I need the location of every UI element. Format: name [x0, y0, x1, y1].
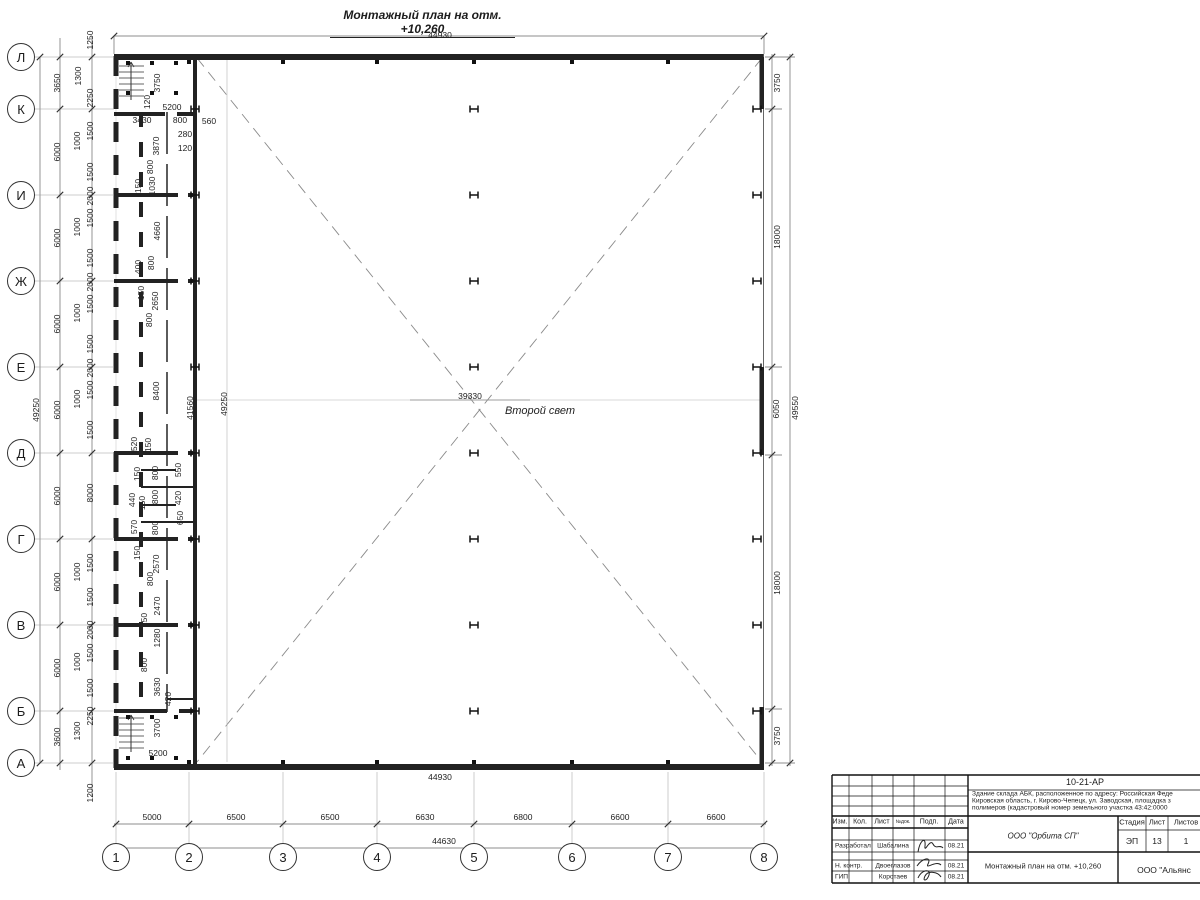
project-desc-line2: Кировская область, г. Кирово-Чепецк, ул.… [972, 798, 1171, 805]
stairs-top [119, 62, 144, 100]
dim-label: 6500 [321, 812, 340, 822]
dim-label: 4660 [152, 222, 162, 241]
tb-role: Н. контр. [835, 862, 862, 869]
dim-label: 570 [129, 520, 139, 534]
dim-label: 3430 [133, 115, 152, 125]
axis-row-Ж: Ж [7, 267, 35, 295]
partition-walls [114, 114, 193, 711]
dim-label: 1000 [72, 218, 82, 237]
project-desc-line3: полимеров (кадастровый номер земельного … [972, 805, 1168, 812]
dim-label: 6000 [52, 401, 62, 420]
dim-label: 5200 [149, 748, 168, 758]
dim-label: 800 [139, 658, 149, 672]
dim-label: 44930 [428, 772, 452, 782]
col-ndok: №док. [896, 819, 911, 825]
dim-label: 49250 [31, 398, 41, 422]
dim-label: 1500 [85, 554, 95, 573]
col-data: Дата [948, 819, 964, 826]
dim-label: 6500 [227, 812, 246, 822]
dim-label: 800 [150, 521, 160, 535]
axis-row-К: К [7, 95, 35, 123]
h-column [753, 192, 761, 199]
dim-label: 6000 [52, 573, 62, 592]
dim-label: 1300 [72, 722, 82, 741]
dim-label: 6600 [707, 812, 726, 822]
h-column [470, 622, 478, 629]
dim-label: 800 [146, 256, 156, 270]
axis-col-8: 8 [750, 843, 778, 871]
dim-label: 150 [132, 546, 142, 560]
dim-label: 2000 [85, 187, 95, 206]
h-column [470, 536, 478, 543]
dim-label: 41560 [185, 396, 195, 420]
h-column [470, 278, 478, 285]
dim-label: 400 [133, 260, 143, 274]
drawing-sheet: { "title": {"text": "Монтажный план на о… [0, 0, 1200, 900]
h-column [470, 450, 478, 457]
dim-label: 6600 [611, 812, 630, 822]
x-bracing [197, 58, 762, 762]
dim-label: 800 [150, 466, 160, 480]
dim-label: 560 [202, 116, 216, 126]
dim-label: 420 [173, 491, 183, 505]
dim-label: 800 [150, 490, 160, 504]
dim-label: 2250 [85, 89, 95, 108]
dim-label: 6050 [771, 400, 781, 419]
dim-label: 1500 [85, 209, 95, 228]
h-column [470, 708, 478, 715]
axis-row-Д: Д [7, 439, 35, 467]
dim-label: 1500 [85, 122, 95, 141]
dim-label: 1250 [85, 31, 95, 50]
dim-label: 1500 [85, 588, 95, 607]
reference-lines [116, 54, 762, 770]
dim-label: 2000 [85, 621, 95, 640]
dim-label: 420 [163, 692, 173, 706]
dim-label: 3600 [52, 728, 62, 747]
col-list: Лист [874, 819, 889, 826]
h-column [753, 622, 761, 629]
tb-date: 08.21 [948, 874, 965, 881]
axis-row-А: А [7, 749, 35, 777]
steel-columns [191, 106, 761, 715]
tb-name: Двоеглазов [875, 862, 910, 869]
dim-label: 800 [173, 115, 187, 125]
dim-label: 2250 [85, 707, 95, 726]
tb-name: Шабалина [877, 843, 909, 850]
axis-row-И: И [7, 181, 35, 209]
dim-label: 5000 [143, 812, 162, 822]
stairs-bottom [119, 715, 144, 752]
dim-label: 1500 [85, 421, 95, 440]
dim-label: 800 [144, 313, 154, 327]
dim-label: 1300 [73, 67, 83, 86]
dim-label: 3650 [52, 74, 62, 93]
col-izm: Изм. [833, 819, 848, 826]
dim-label: 150 [137, 496, 147, 510]
h-column [470, 364, 478, 371]
col-kol: Кол. [853, 819, 867, 826]
axis-row-В: В [7, 611, 35, 639]
dim-label: 2000 [85, 359, 95, 378]
h-column [753, 536, 761, 543]
stage-value: ЭП [1126, 836, 1138, 846]
axis-col-3: 3 [269, 843, 297, 871]
dim-label: 520 [129, 437, 139, 451]
dim-label: 3870 [151, 137, 161, 156]
dim-label: 150 [136, 286, 146, 300]
dim-label: 6000 [52, 229, 62, 248]
axis-row-Е: Е [7, 353, 35, 381]
dim-label: 800 [145, 160, 155, 174]
dim-label: 1000 [72, 132, 82, 151]
dim-label: 49550 [790, 396, 800, 420]
dim-label: 6000 [52, 143, 62, 162]
dim-label: 1280 [152, 629, 162, 648]
axis-col-4: 4 [363, 843, 391, 871]
col-podp: Подп. [920, 819, 939, 826]
dim-label: 650 [175, 511, 185, 525]
tb-date: 08.21 [948, 843, 965, 850]
dim-label: 1500 [85, 249, 95, 268]
axis-col-2: 2 [175, 843, 203, 871]
axis-row-Л: Л [7, 43, 35, 71]
dim-label: 39330 [458, 391, 482, 401]
org-name: ООО "Альянс [1137, 865, 1191, 875]
axis-row-Г: Г [7, 525, 35, 553]
dim-label: 1000 [72, 304, 82, 323]
dim-label: 44930 [428, 30, 452, 40]
dim-label: 150 [139, 613, 149, 627]
h-column [470, 106, 478, 113]
doc-code: 10-21-АР [1066, 777, 1104, 787]
dim-label: 2650 [150, 292, 160, 311]
axis-row-Б: Б [7, 697, 35, 725]
dim-label: 6000 [52, 487, 62, 506]
dim-label: 120 [142, 95, 152, 109]
dim-label: 6000 [52, 659, 62, 678]
dim-label: 8000 [85, 484, 95, 503]
sheets-value: 1 [1184, 836, 1189, 846]
h-column [470, 192, 478, 199]
dim-label: 800 [145, 572, 155, 586]
dim-label: 1500 [85, 335, 95, 354]
dim-label: 1500 [85, 163, 95, 182]
dim-label: 3750 [772, 727, 782, 746]
tb-date: 08.21 [948, 862, 965, 869]
walls [114, 54, 764, 770]
dim-label: 44630 [432, 836, 456, 846]
dim-label: 18000 [772, 571, 782, 595]
dim-label: 2470 [152, 597, 162, 616]
axis-col-7: 7 [654, 843, 682, 871]
stage-header: Стадия [1119, 818, 1145, 827]
dim-label: 2570 [151, 555, 161, 574]
dim-label: 1200 [85, 784, 95, 803]
axis-col-1: 1 [102, 843, 130, 871]
dim-label: 280 [178, 129, 192, 139]
tb-role: ГИП [835, 874, 848, 881]
tb-role: Разработал [835, 843, 871, 850]
dim-label: 3630 [152, 678, 162, 697]
dim-label: 3750 [152, 74, 162, 93]
dim-label: 5200 [163, 102, 182, 112]
dim-label: 3700 [152, 719, 162, 738]
dim-label: 6630 [416, 812, 435, 822]
dim-label: 1500 [85, 295, 95, 314]
dim-label: 120 [178, 143, 192, 153]
company-name: ООО "Орбита СП" [1007, 832, 1078, 841]
dim-label: 6800 [514, 812, 533, 822]
dim-label: 150 [132, 467, 142, 481]
dim-label: 1000 [72, 563, 82, 582]
drawing-title: Монтажный план на отм. +10,260 [330, 8, 515, 38]
dim-label: 150 [143, 438, 153, 452]
dim-label: 1030 [147, 177, 157, 196]
dim-label: 150 [133, 179, 143, 193]
dim-label: 1500 [85, 381, 95, 400]
second-light-note: Второй свет [505, 405, 575, 417]
axis-col-6: 6 [558, 843, 586, 871]
dim-label: 8400 [151, 382, 161, 401]
dim-label: 440 [127, 493, 137, 507]
project-desc-line1: Здание склада АБК, расположенное по адре… [972, 791, 1173, 798]
dim-label: 2000 [85, 273, 95, 292]
sheets-header: Листов [1174, 818, 1198, 827]
dim-label: 1500 [85, 644, 95, 663]
tb-name: Коротаев [879, 874, 907, 881]
doc-title: Монтажный план на отм. +10,260 [985, 862, 1101, 871]
dim-label: 18000 [772, 225, 782, 249]
dim-label: 6000 [52, 315, 62, 334]
h-column [753, 278, 761, 285]
dim-label: 1500 [85, 679, 95, 698]
dim-label: 3750 [772, 74, 782, 93]
dim-label: 1000 [72, 390, 82, 409]
sheet-header: Лист [1149, 818, 1165, 827]
dim-label: 550 [173, 463, 183, 477]
dim-label: 1000 [72, 653, 82, 672]
dim-label: 49250 [219, 392, 229, 416]
axis-col-5: 5 [460, 843, 488, 871]
sheet-value: 13 [1152, 836, 1161, 846]
